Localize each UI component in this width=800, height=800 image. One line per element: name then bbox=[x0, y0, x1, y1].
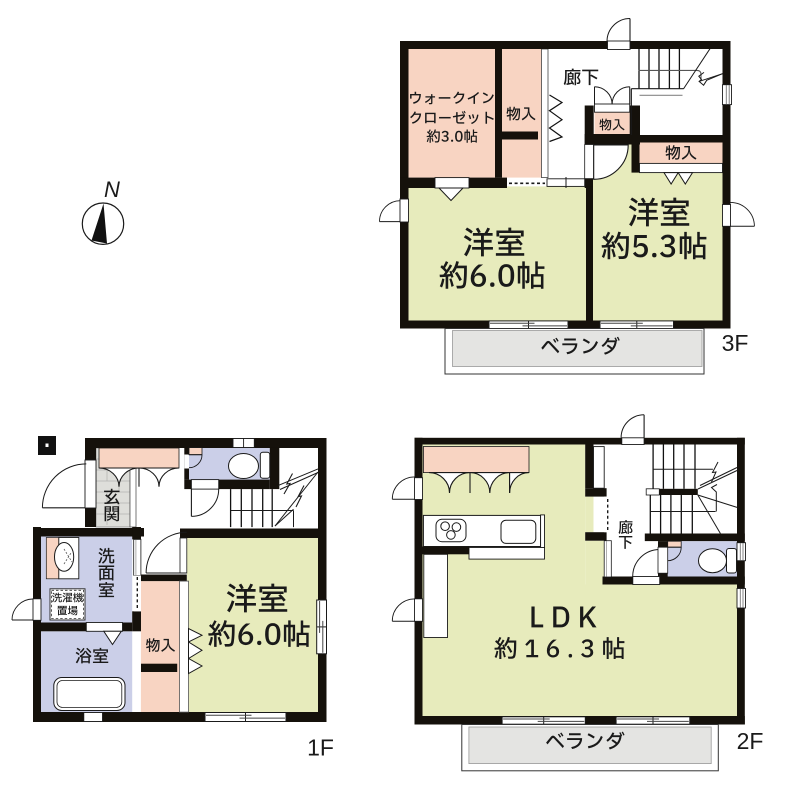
svg-text:2F: 2F bbox=[737, 728, 764, 754]
svg-text:N: N bbox=[104, 177, 120, 202]
svg-text:1F: 1F bbox=[307, 735, 334, 761]
svg-text:3F: 3F bbox=[722, 330, 749, 356]
